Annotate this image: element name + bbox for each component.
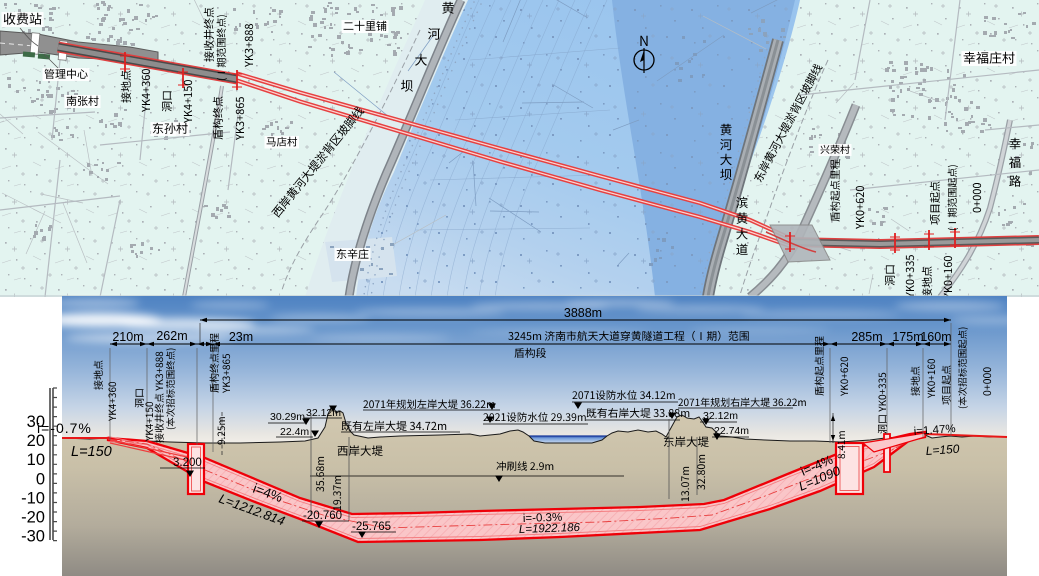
svg-text:-20: -20: [21, 509, 45, 527]
svg-text:3.200: 3.200: [173, 457, 202, 469]
svg-text:-20.760: -20.760: [303, 510, 342, 522]
svg-text:L=150: L=150: [71, 444, 112, 460]
svg-text:-30: -30: [21, 528, 45, 546]
svg-text:-25.765: -25.765: [352, 521, 391, 533]
svg-text:0: 0: [36, 470, 45, 488]
svg-text:160m: 160m: [920, 330, 951, 344]
svg-text:285m: 285m: [851, 330, 882, 344]
svg-text:262m: 262m: [156, 329, 187, 343]
svg-text:22.4m: 22.4m: [280, 426, 309, 438]
svg-text:i=-0.7%: i=-0.7%: [37, 420, 92, 436]
svg-text:210m: 210m: [112, 330, 143, 344]
svg-text:30.29m: 30.29m: [270, 411, 305, 423]
svg-text:3888m: 3888m: [564, 306, 602, 320]
svg-text:23m: 23m: [229, 330, 253, 344]
svg-text:-10: -10: [21, 489, 45, 507]
svg-text:175m: 175m: [892, 330, 923, 344]
svg-text:L=150: L=150: [925, 442, 960, 458]
svg-text:L=1922.186: L=1922.186: [519, 522, 581, 536]
svg-text:10: 10: [27, 451, 45, 469]
